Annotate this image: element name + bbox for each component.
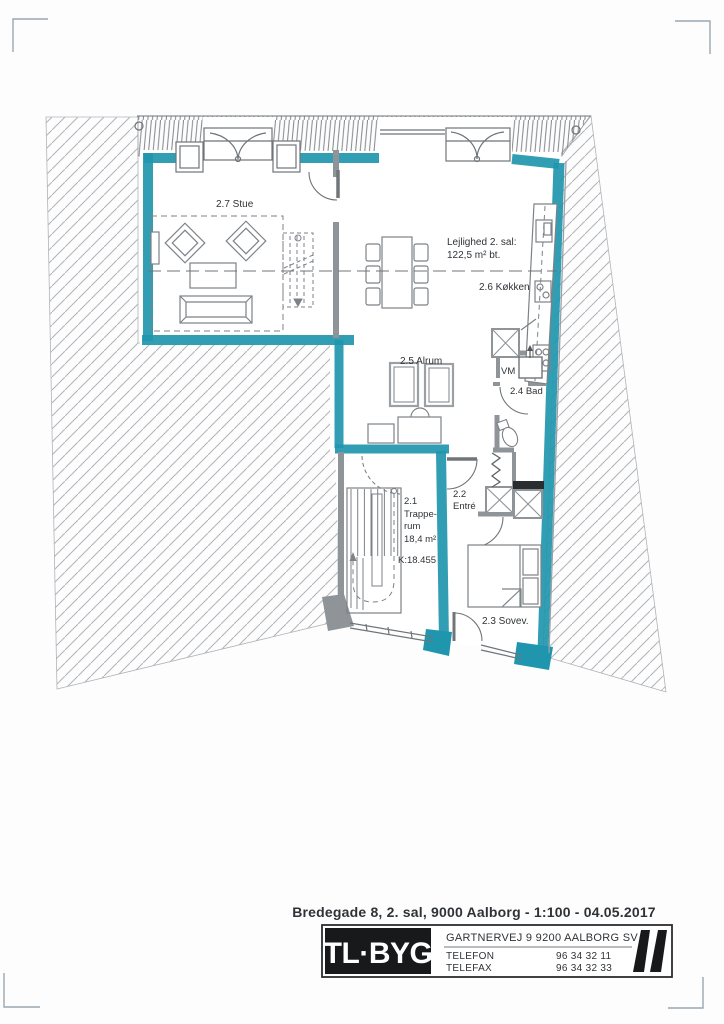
pillow — [523, 578, 538, 604]
sofa — [180, 296, 252, 323]
company-address: GARTNERVEJ 9 9200 AALBORG SV — [446, 932, 638, 944]
dining-table — [382, 237, 412, 308]
crop-mark-bottom-left — [4, 973, 40, 1007]
pillow — [523, 549, 538, 575]
dining-chair — [414, 288, 428, 305]
label-stue: 2.7 Stue — [216, 199, 254, 210]
washing-machine-box — [519, 357, 542, 378]
wall-corner-se — [514, 642, 553, 670]
crop-mark-bottom-right — [668, 977, 703, 1008]
label-trappe-l2: rum — [404, 521, 420, 532]
radiator-west — [151, 232, 159, 264]
label-trappe-area: 18,4 m² — [404, 534, 436, 545]
wall-corner-sw — [423, 629, 452, 656]
coffee-table — [190, 263, 236, 288]
title-block: Bredegade 8, 2. sal, 9000 Aalborg - 1:10… — [292, 904, 672, 977]
label-koekken: 2.6 Køkken — [479, 282, 530, 293]
telefon-number: 96 34 32 11 — [556, 951, 612, 962]
crop-mark-top-right — [675, 21, 710, 54]
dining-chair — [366, 244, 380, 261]
alrum-board-1-inner — [394, 367, 414, 402]
dining-chair — [366, 266, 380, 283]
label-apartment-2: 122,5 m² bt. — [447, 250, 500, 261]
crop-mark-top-left — [13, 19, 48, 52]
lintel-bar — [513, 481, 544, 489]
label-bad: 2.4 Bad — [510, 386, 543, 397]
window-bay1-cut — [203, 117, 273, 158]
label-trappe-no: 2.1 — [404, 496, 417, 507]
wall-top-c — [512, 159, 559, 164]
telefon-label: TELEFON — [446, 951, 494, 962]
label-apartment-1: Lejlighed 2. sal: — [447, 237, 517, 248]
floor-plan-svg: 2.7 Stue Lejlighed 2. sal: 122,5 m² bt. … — [0, 0, 724, 1024]
company-logo-text: TL·BYG — [324, 937, 433, 970]
dining-chair — [366, 288, 380, 305]
dining-chair — [414, 266, 428, 283]
wall-west-sovev — [441, 451, 444, 641]
label-vm: VM — [501, 366, 515, 377]
dining-chair — [414, 244, 428, 261]
drawing-title: Bredegade 8, 2. sal, 9000 Aalborg - 1:10… — [292, 904, 656, 920]
alrum-board-2-inner — [429, 368, 449, 402]
telefax-number: 96 34 32 33 — [556, 963, 612, 974]
telefax-label: TELEFAX — [446, 963, 492, 974]
alrum-side-table — [368, 424, 394, 443]
alrum-desk — [398, 417, 441, 443]
label-alrum: 2.5 Alrum — [400, 356, 442, 367]
label-kote: K:18.455 — [398, 555, 436, 566]
label-entre-no: 2.2 — [453, 489, 466, 500]
label-sovev: 2.3 Sovev. — [482, 616, 529, 627]
window-bay2-cut — [378, 117, 512, 160]
label-trappe-l1: Trappe- — [404, 509, 437, 520]
label-entre: Entré — [453, 501, 476, 512]
dining-set — [366, 237, 428, 308]
scanned-drawing-page: 2.7 Stue Lejlighed 2. sal: 122,5 m² bt. … — [0, 0, 724, 1024]
bed — [468, 545, 541, 607]
